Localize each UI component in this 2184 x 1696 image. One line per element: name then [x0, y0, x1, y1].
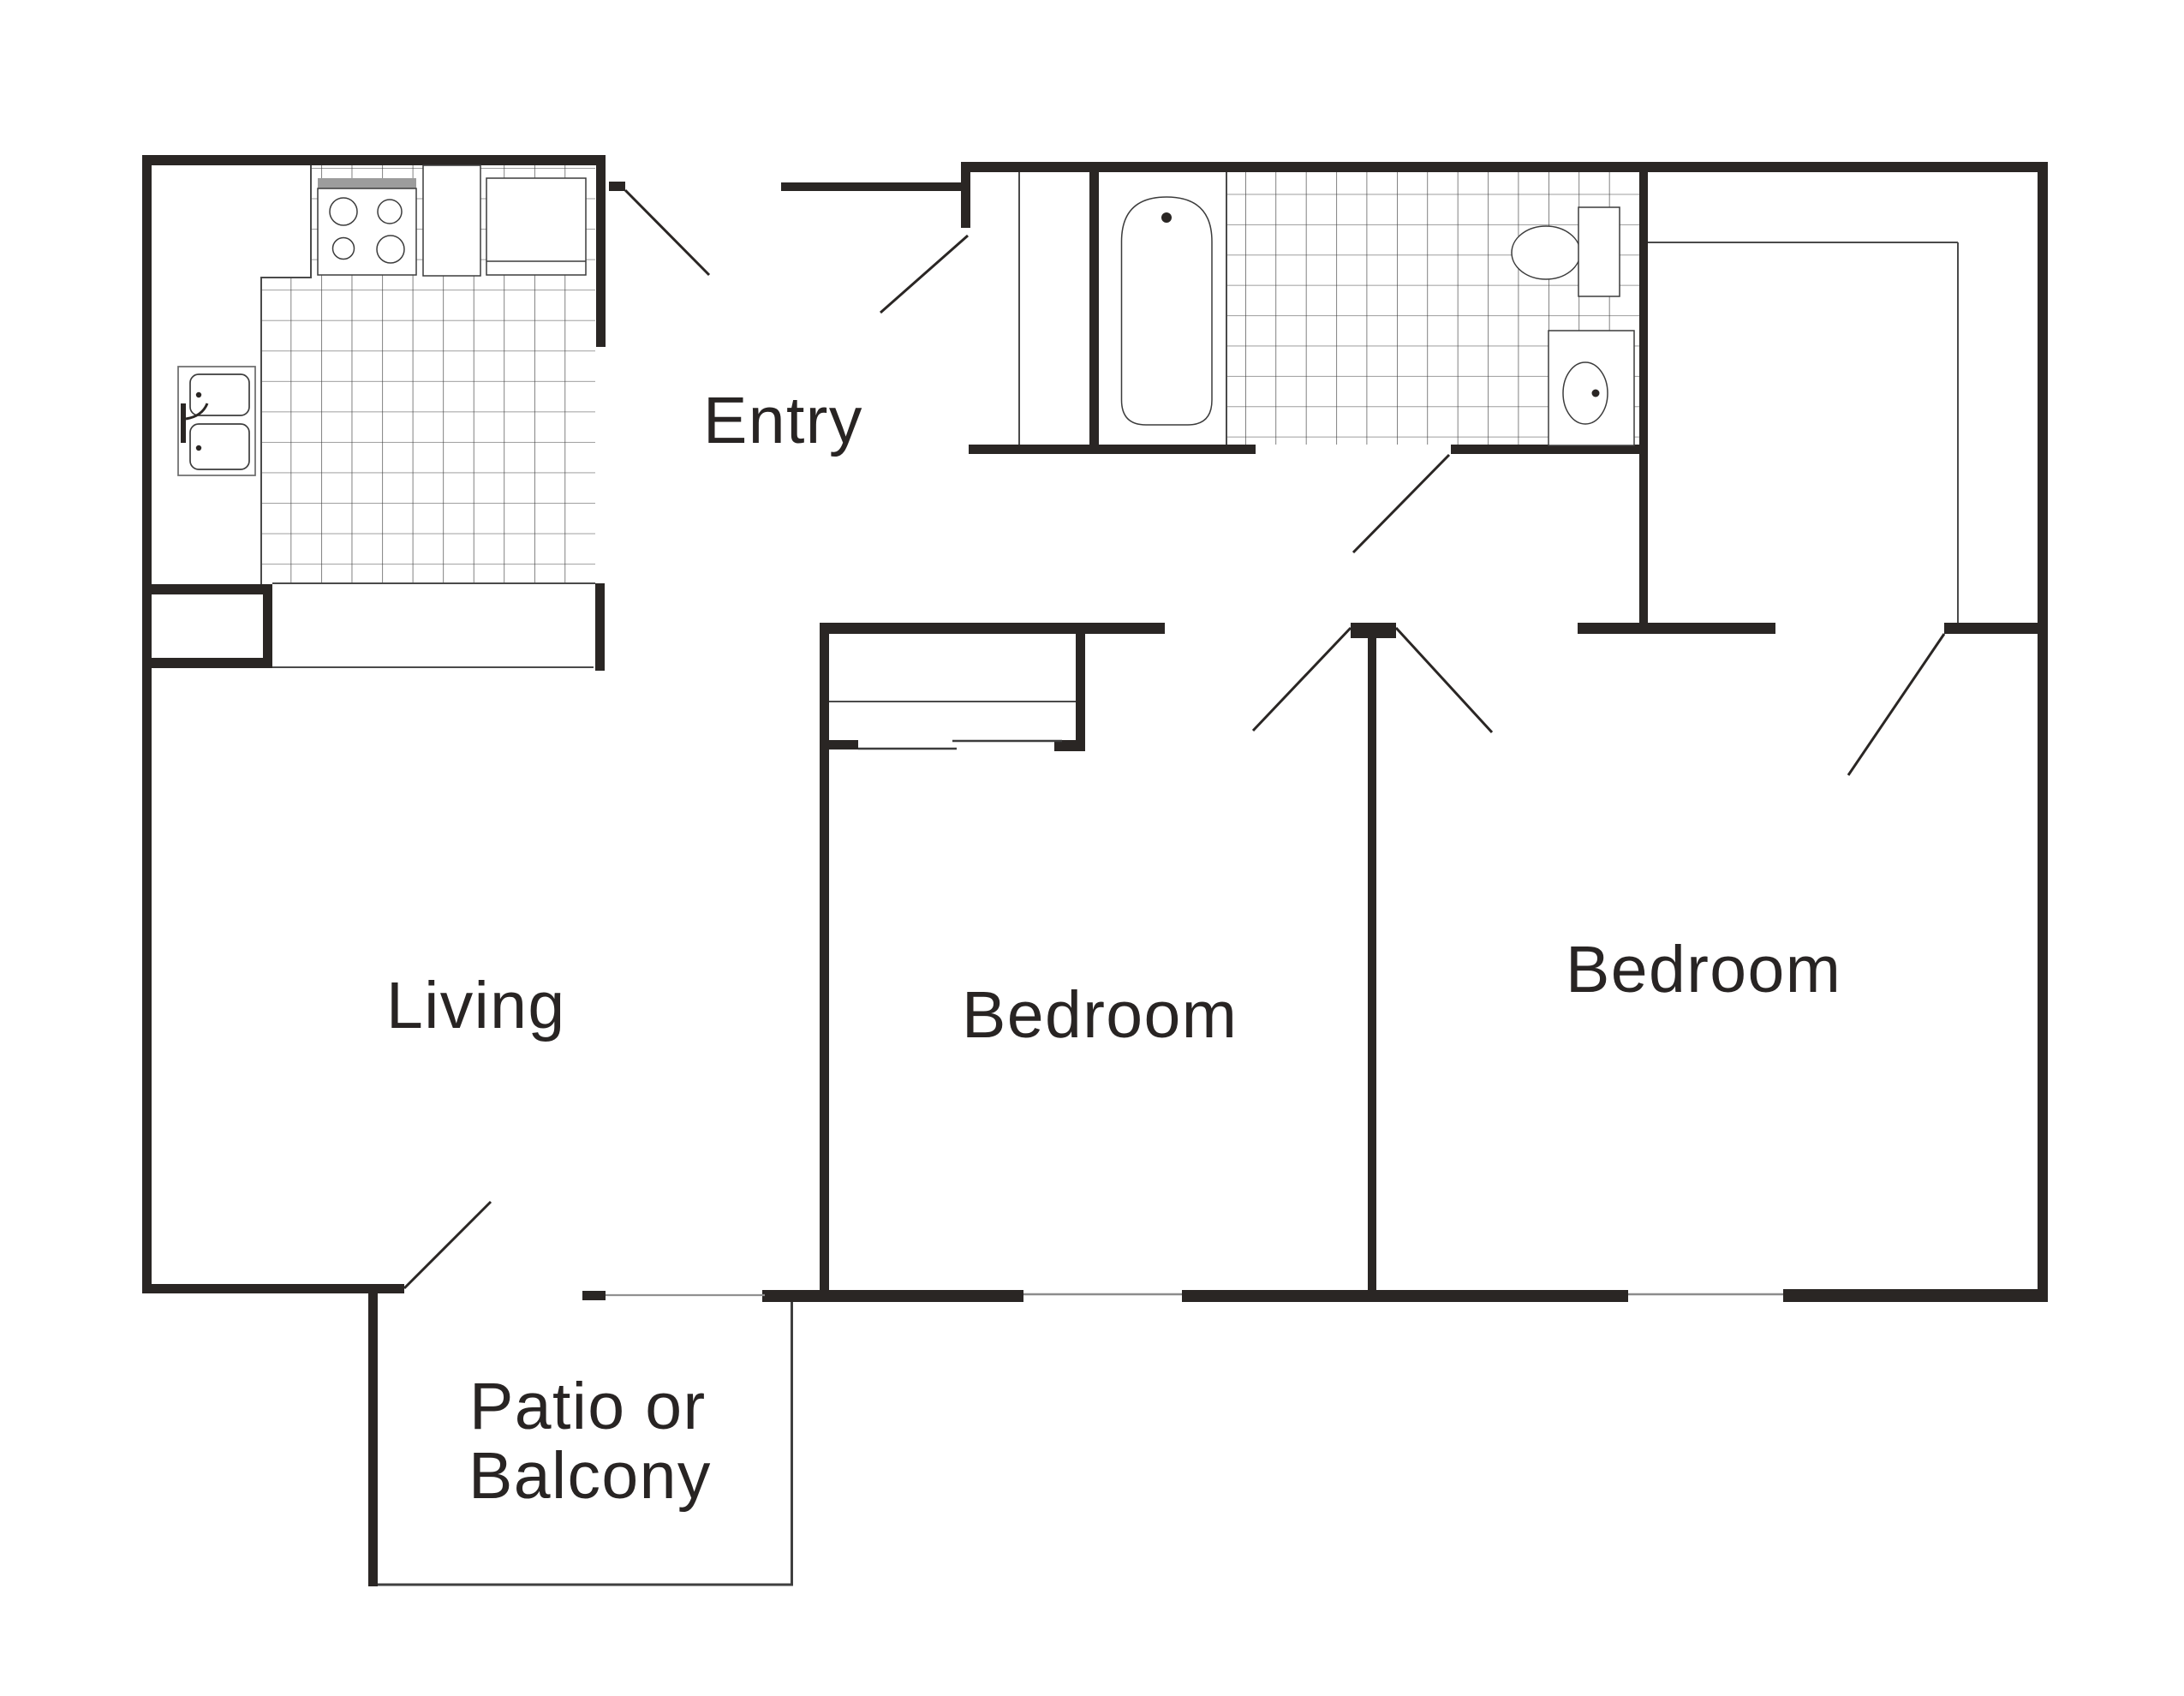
svg-text:Bedroom: Bedroom: [962, 978, 1238, 1052]
svg-text:Patio or: Patio or: [469, 1370, 707, 1443]
svg-text:Bedroom: Bedroom: [1566, 933, 1841, 1006]
svg-text:Living: Living: [386, 969, 566, 1042]
svg-text:Balcony: Balcony: [468, 1439, 712, 1513]
svg-text:Entry: Entry: [703, 384, 863, 457]
